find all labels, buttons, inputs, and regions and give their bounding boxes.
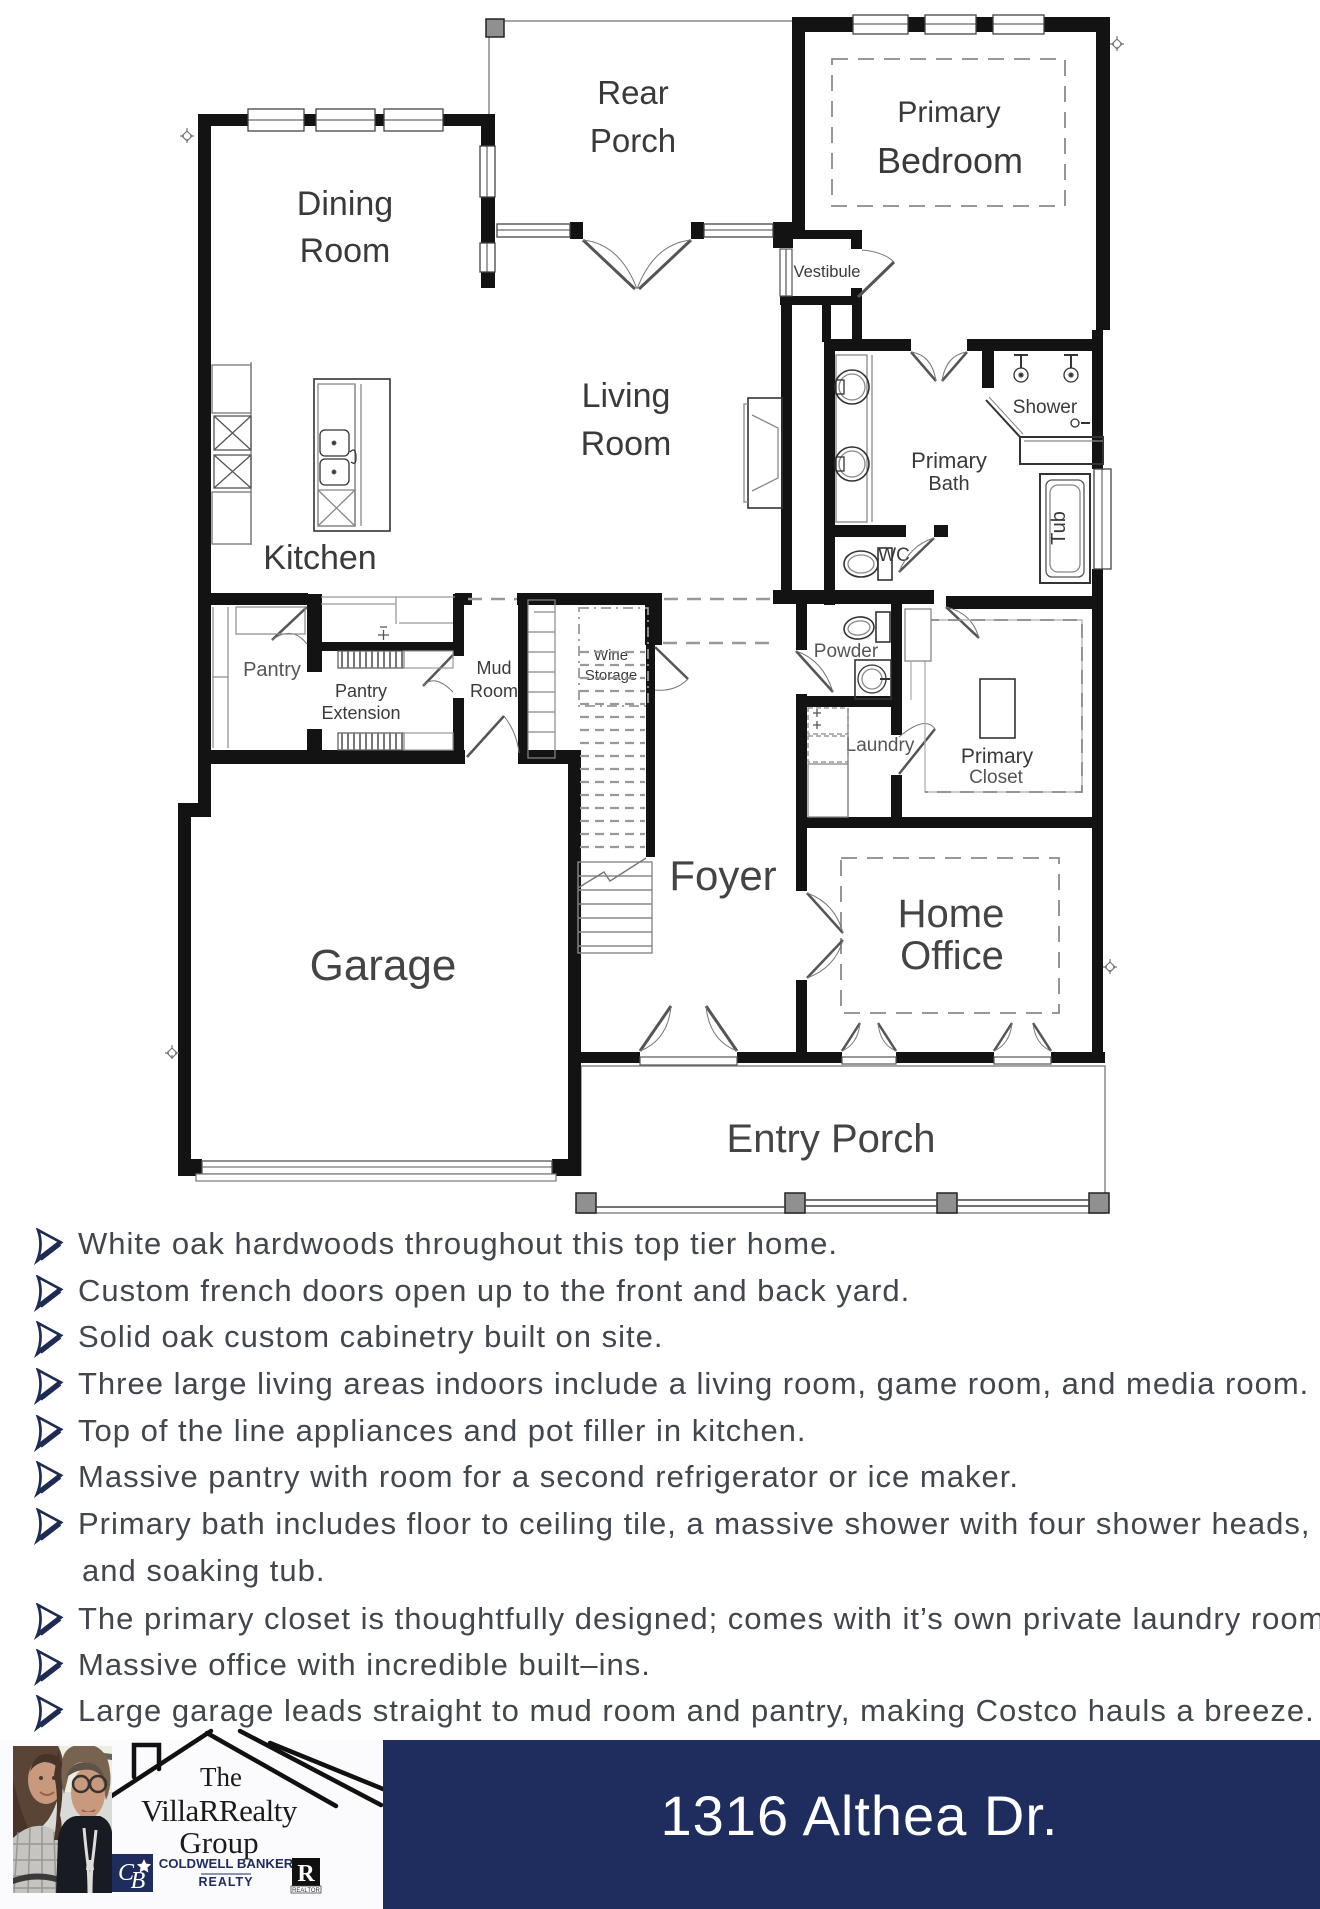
svg-text:Wine: Wine — [594, 647, 628, 664]
svg-text:Storage: Storage — [585, 667, 638, 684]
svg-text:Room: Room — [581, 425, 672, 463]
svg-text:Mud: Mud — [476, 658, 511, 678]
svg-text:Room: Room — [470, 681, 518, 701]
svg-text:Powder: Powder — [814, 641, 879, 662]
svg-text:Vestibule: Vestibule — [794, 263, 861, 281]
svg-text:REALTY: REALTY — [198, 1875, 253, 1889]
svg-text:COLDWELL BANKER: COLDWELL BANKER — [159, 1856, 294, 1871]
svg-text:Shower: Shower — [1013, 397, 1078, 418]
svg-text:Office: Office — [900, 934, 1004, 978]
svg-text:Living: Living — [582, 377, 671, 415]
svg-text:Entry Porch: Entry Porch — [727, 1117, 936, 1161]
svg-text:Bedroom: Bedroom — [877, 140, 1023, 181]
svg-text:The: The — [200, 1762, 242, 1792]
svg-text:Tub: Tub — [1048, 511, 1070, 545]
svg-text:Pantry: Pantry — [243, 659, 301, 681]
svg-text:Kitchen: Kitchen — [263, 539, 376, 577]
svg-text:R: R — [297, 1861, 315, 1887]
svg-text:Rear: Rear — [597, 74, 669, 111]
svg-text:Room: Room — [300, 232, 391, 270]
svg-text:Dining: Dining — [297, 185, 393, 223]
svg-text:Primary: Primary — [911, 448, 987, 473]
svg-text:Extension: Extension — [321, 703, 400, 723]
svg-text:Porch: Porch — [590, 122, 676, 159]
svg-text:Garage: Garage — [310, 941, 457, 990]
svg-text:REALTOR: REALTOR — [292, 1888, 320, 1894]
svg-text:Primary: Primary — [961, 745, 1034, 768]
svg-text:Laundry: Laundry — [846, 735, 915, 756]
svg-text:VillaRRealty: VillaRRealty — [141, 1793, 298, 1828]
svg-text:Closet: Closet — [969, 767, 1024, 788]
svg-text:Bath: Bath — [928, 473, 969, 495]
svg-text:Pantry: Pantry — [335, 681, 387, 701]
svg-text:Home: Home — [898, 892, 1005, 936]
svg-text:Group: Group — [179, 1825, 258, 1860]
svg-text:Primary: Primary — [897, 96, 1000, 129]
svg-text:B: B — [131, 1868, 146, 1894]
svg-text:Foyer: Foyer — [669, 852, 776, 899]
